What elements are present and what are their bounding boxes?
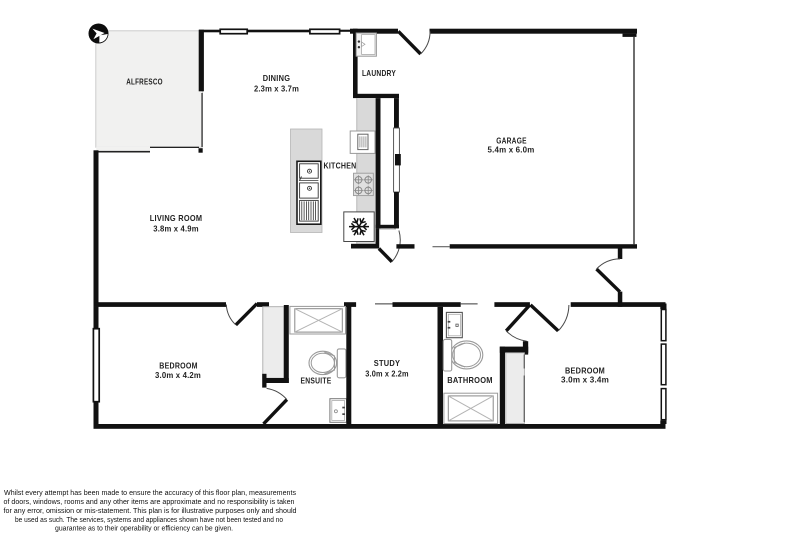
svg-text:LAUNDRY: LAUNDRY (362, 68, 396, 78)
svg-text:guarantee as to their operabil: guarantee as to their operability or eff… (55, 526, 233, 533)
svg-text:3.0m x 3.4m: 3.0m x 3.4m (561, 375, 609, 385)
svg-text:5.4m x 6.0m: 5.4m x 6.0m (488, 145, 535, 155)
svg-text:BEDROOM: BEDROOM (159, 361, 198, 371)
svg-text:3.0m x 2.2m: 3.0m x 2.2m (365, 369, 409, 379)
svg-text:BATHROOM: BATHROOM (447, 375, 493, 385)
svg-text:of doors, windows, rooms and a: of doors, windows, rooms and any other i… (4, 499, 295, 506)
svg-text:3.0m x 4.2m: 3.0m x 4.2m (155, 370, 201, 380)
svg-text:3.8m x 4.9m: 3.8m x 4.9m (153, 224, 199, 234)
svg-text:2.3m x 3.7m: 2.3m x 3.7m (254, 84, 299, 94)
svg-text:be used as such. The services,: be used as such. The services, systems a… (15, 517, 283, 524)
svg-text:DINING: DINING (263, 73, 291, 83)
svg-text:STUDY: STUDY (374, 358, 401, 368)
svg-text:for any error, omission or mis: for any error, omission or mis-statement… (4, 508, 297, 515)
svg-text:ALFRESCO: ALFRESCO (126, 77, 163, 87)
svg-text:LIVING ROOM: LIVING ROOM (150, 213, 203, 223)
svg-text:KITCHEN: KITCHEN (324, 161, 357, 171)
svg-text:ENSUITE: ENSUITE (301, 376, 332, 386)
svg-text:Whilst every attempt has been: Whilst every attempt has been made to en… (4, 490, 297, 497)
